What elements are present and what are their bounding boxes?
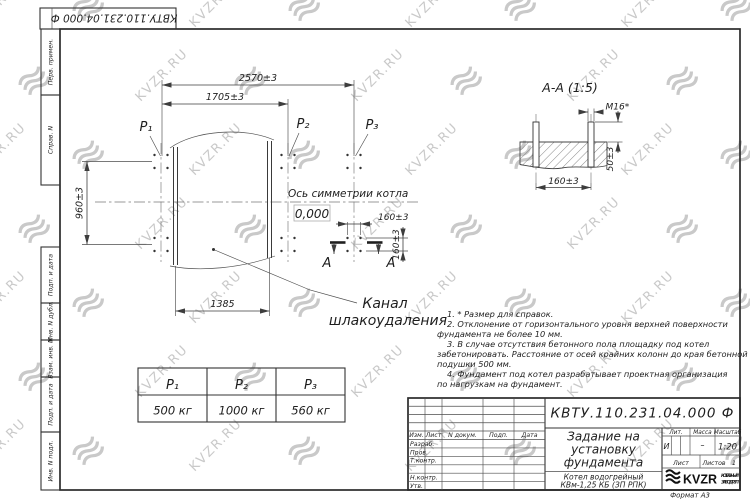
- section-letter-left: А: [322, 256, 332, 271]
- channel-label-line2: шлакоудаления: [329, 313, 447, 329]
- row-prov: Пров.: [410, 449, 428, 456]
- channel-label-line1: Канал: [362, 296, 407, 312]
- dim-50: 50±3: [606, 146, 616, 171]
- col-data: Дата: [520, 432, 537, 439]
- side-label: Инв. N дубл.: [47, 301, 55, 342]
- dim-960: 960±3: [75, 187, 86, 219]
- side-label: Перв. примен.: [48, 39, 55, 85]
- scale-value: 1:20: [718, 443, 737, 453]
- sheets-value: 1: [732, 460, 736, 467]
- corner-stamp-text: КВТУ.110.231.04.000 Ф: [51, 12, 178, 24]
- side-label: Взам. инв. N: [48, 338, 55, 379]
- side-label: Справ. N: [48, 125, 55, 154]
- logo-wave-icon: [666, 470, 680, 474]
- dim-1705: 1705±3: [206, 92, 244, 103]
- row-razrab: Разраб.: [410, 440, 434, 448]
- lit-header: Лит.: [668, 430, 683, 436]
- stud-spacing-dim: 160±3: [536, 177, 591, 190]
- side-label: Подп. и дата: [48, 383, 55, 425]
- side-label: Инв. N подл.: [48, 441, 55, 482]
- doc-title-line1: Задание на: [567, 430, 640, 444]
- engineering-drawing: КВТУ.110.231.04.000 Ф Перв. примен. Спра…: [0, 0, 750, 500]
- anchor-stud-left: [533, 122, 539, 167]
- scale-header: Масштаб: [714, 430, 742, 436]
- note-line: фундамента не более 10 мм.: [437, 329, 563, 339]
- side-stamp-column: Перв. примен. Справ. N Подп. и дата Инв.…: [41, 29, 60, 490]
- load-table: P₁ P₂ P₃ 500 кг 1000 кг 560 кг: [138, 368, 345, 422]
- dim-160-horizontal: 160±3: [378, 213, 409, 223]
- note-line: по нагрузкам на фундамент.: [437, 379, 563, 389]
- col-podp: Подп.: [489, 432, 508, 439]
- kvzr-logo: KVZR КОТЕЛЬНЫЙ ЗАВОД РЭП: [666, 470, 739, 486]
- load-table-header: P₃: [304, 378, 317, 393]
- dim-2570: 2570±3: [239, 73, 277, 84]
- load-table-header: P₂: [235, 378, 248, 393]
- side-label: Подп. и дата: [48, 254, 55, 296]
- title-block: Изм. Лист N докум. Подп. Дата Разраб. Пр…: [408, 398, 742, 500]
- mass-value: –: [701, 441, 705, 450]
- label-p2: P₂: [296, 117, 309, 132]
- doc-subtitle-line2: КВм-1,25 КБ (ЗП РПК): [560, 481, 646, 490]
- lit-value: И: [664, 442, 670, 451]
- load-table-header: P₁: [166, 378, 179, 393]
- dim-1385: 1385: [210, 299, 234, 310]
- section-cut-marks: А А: [322, 243, 396, 272]
- load-table-value: 500 кг: [153, 404, 193, 418]
- drawing-sheet: KVZR.RUKVZR.RUKVZR.RUKVZR.RUKVZR.RUKVZR.…: [0, 0, 750, 500]
- doc-title-line3: фундамента: [564, 456, 643, 470]
- logo-wave-icon: [666, 475, 680, 479]
- break-line-top: [170, 132, 274, 148]
- company-line2: ЗАВОД РЭП: [721, 480, 739, 486]
- note-line: забетонировать. Расстояние от осей крайн…: [437, 349, 748, 359]
- anchor-stud-right: [588, 122, 594, 167]
- doc-number: КВТУ.110.231.04.000 Ф: [551, 406, 735, 422]
- label-p1: P₁: [139, 120, 152, 135]
- level-mark: 0,000: [295, 207, 330, 221]
- col-list: Лист: [425, 432, 442, 439]
- slag-channel: [170, 132, 275, 269]
- sheets-label: Листов: [701, 460, 725, 467]
- note-line: 1. * Размер для справок.: [447, 309, 553, 319]
- label-p3: P₃: [365, 118, 378, 133]
- section-title: А-А (1:5): [541, 80, 597, 95]
- col-doc: N докум.: [448, 432, 477, 439]
- col-izm: Изм.: [409, 432, 424, 439]
- logo-text: KVZR: [683, 473, 717, 487]
- sheet-label: Лист: [672, 460, 689, 467]
- section-letter-right: А: [386, 256, 396, 271]
- row-nkontr: Н.контр.: [410, 475, 438, 482]
- thread-callout: М16*: [579, 103, 630, 122]
- axis-of-symmetry-label: Ось симметрии котла: [288, 188, 408, 200]
- row-tkontr: Т.контр.: [410, 458, 437, 465]
- format-label: Формат А3: [670, 492, 710, 500]
- load-table-value: 560 кг: [291, 404, 331, 418]
- dim-160-section: 160±3: [548, 177, 579, 187]
- note-line: подушки 500 мм.: [437, 359, 511, 369]
- note-line: 4. Фундамент под котел разрабатывает про…: [447, 369, 728, 379]
- note-line: 2. Отклонение от горизонтального уровня …: [447, 319, 728, 329]
- company-line1: КОТЕЛЬНЫЙ: [721, 471, 739, 479]
- technical-notes: 1. * Размер для справок. 2. Отклонение о…: [437, 309, 748, 389]
- foundation-plan-view: 2570±3 1705±3 960±3 1385 160±3 160±3: [75, 73, 448, 329]
- load-point-labels: P₁ P₂ P₃: [139, 117, 378, 156]
- load-table-value: 1000 кг: [219, 404, 266, 418]
- centerlines: [95, 143, 420, 262]
- note-line: 3. В случае отсутствия бетонного пола пл…: [447, 339, 709, 349]
- row-utv: Утв.: [410, 483, 423, 490]
- anchor-bolts-plan: [153, 154, 361, 252]
- break-line-bottom: [170, 256, 275, 269]
- mass-header: Масса: [693, 430, 712, 436]
- logo-wave-icon: [666, 479, 680, 483]
- section-view-a-a: А-А (1:5) М16* 50±3: [520, 80, 630, 190]
- doc-title-line2: установку: [570, 443, 637, 457]
